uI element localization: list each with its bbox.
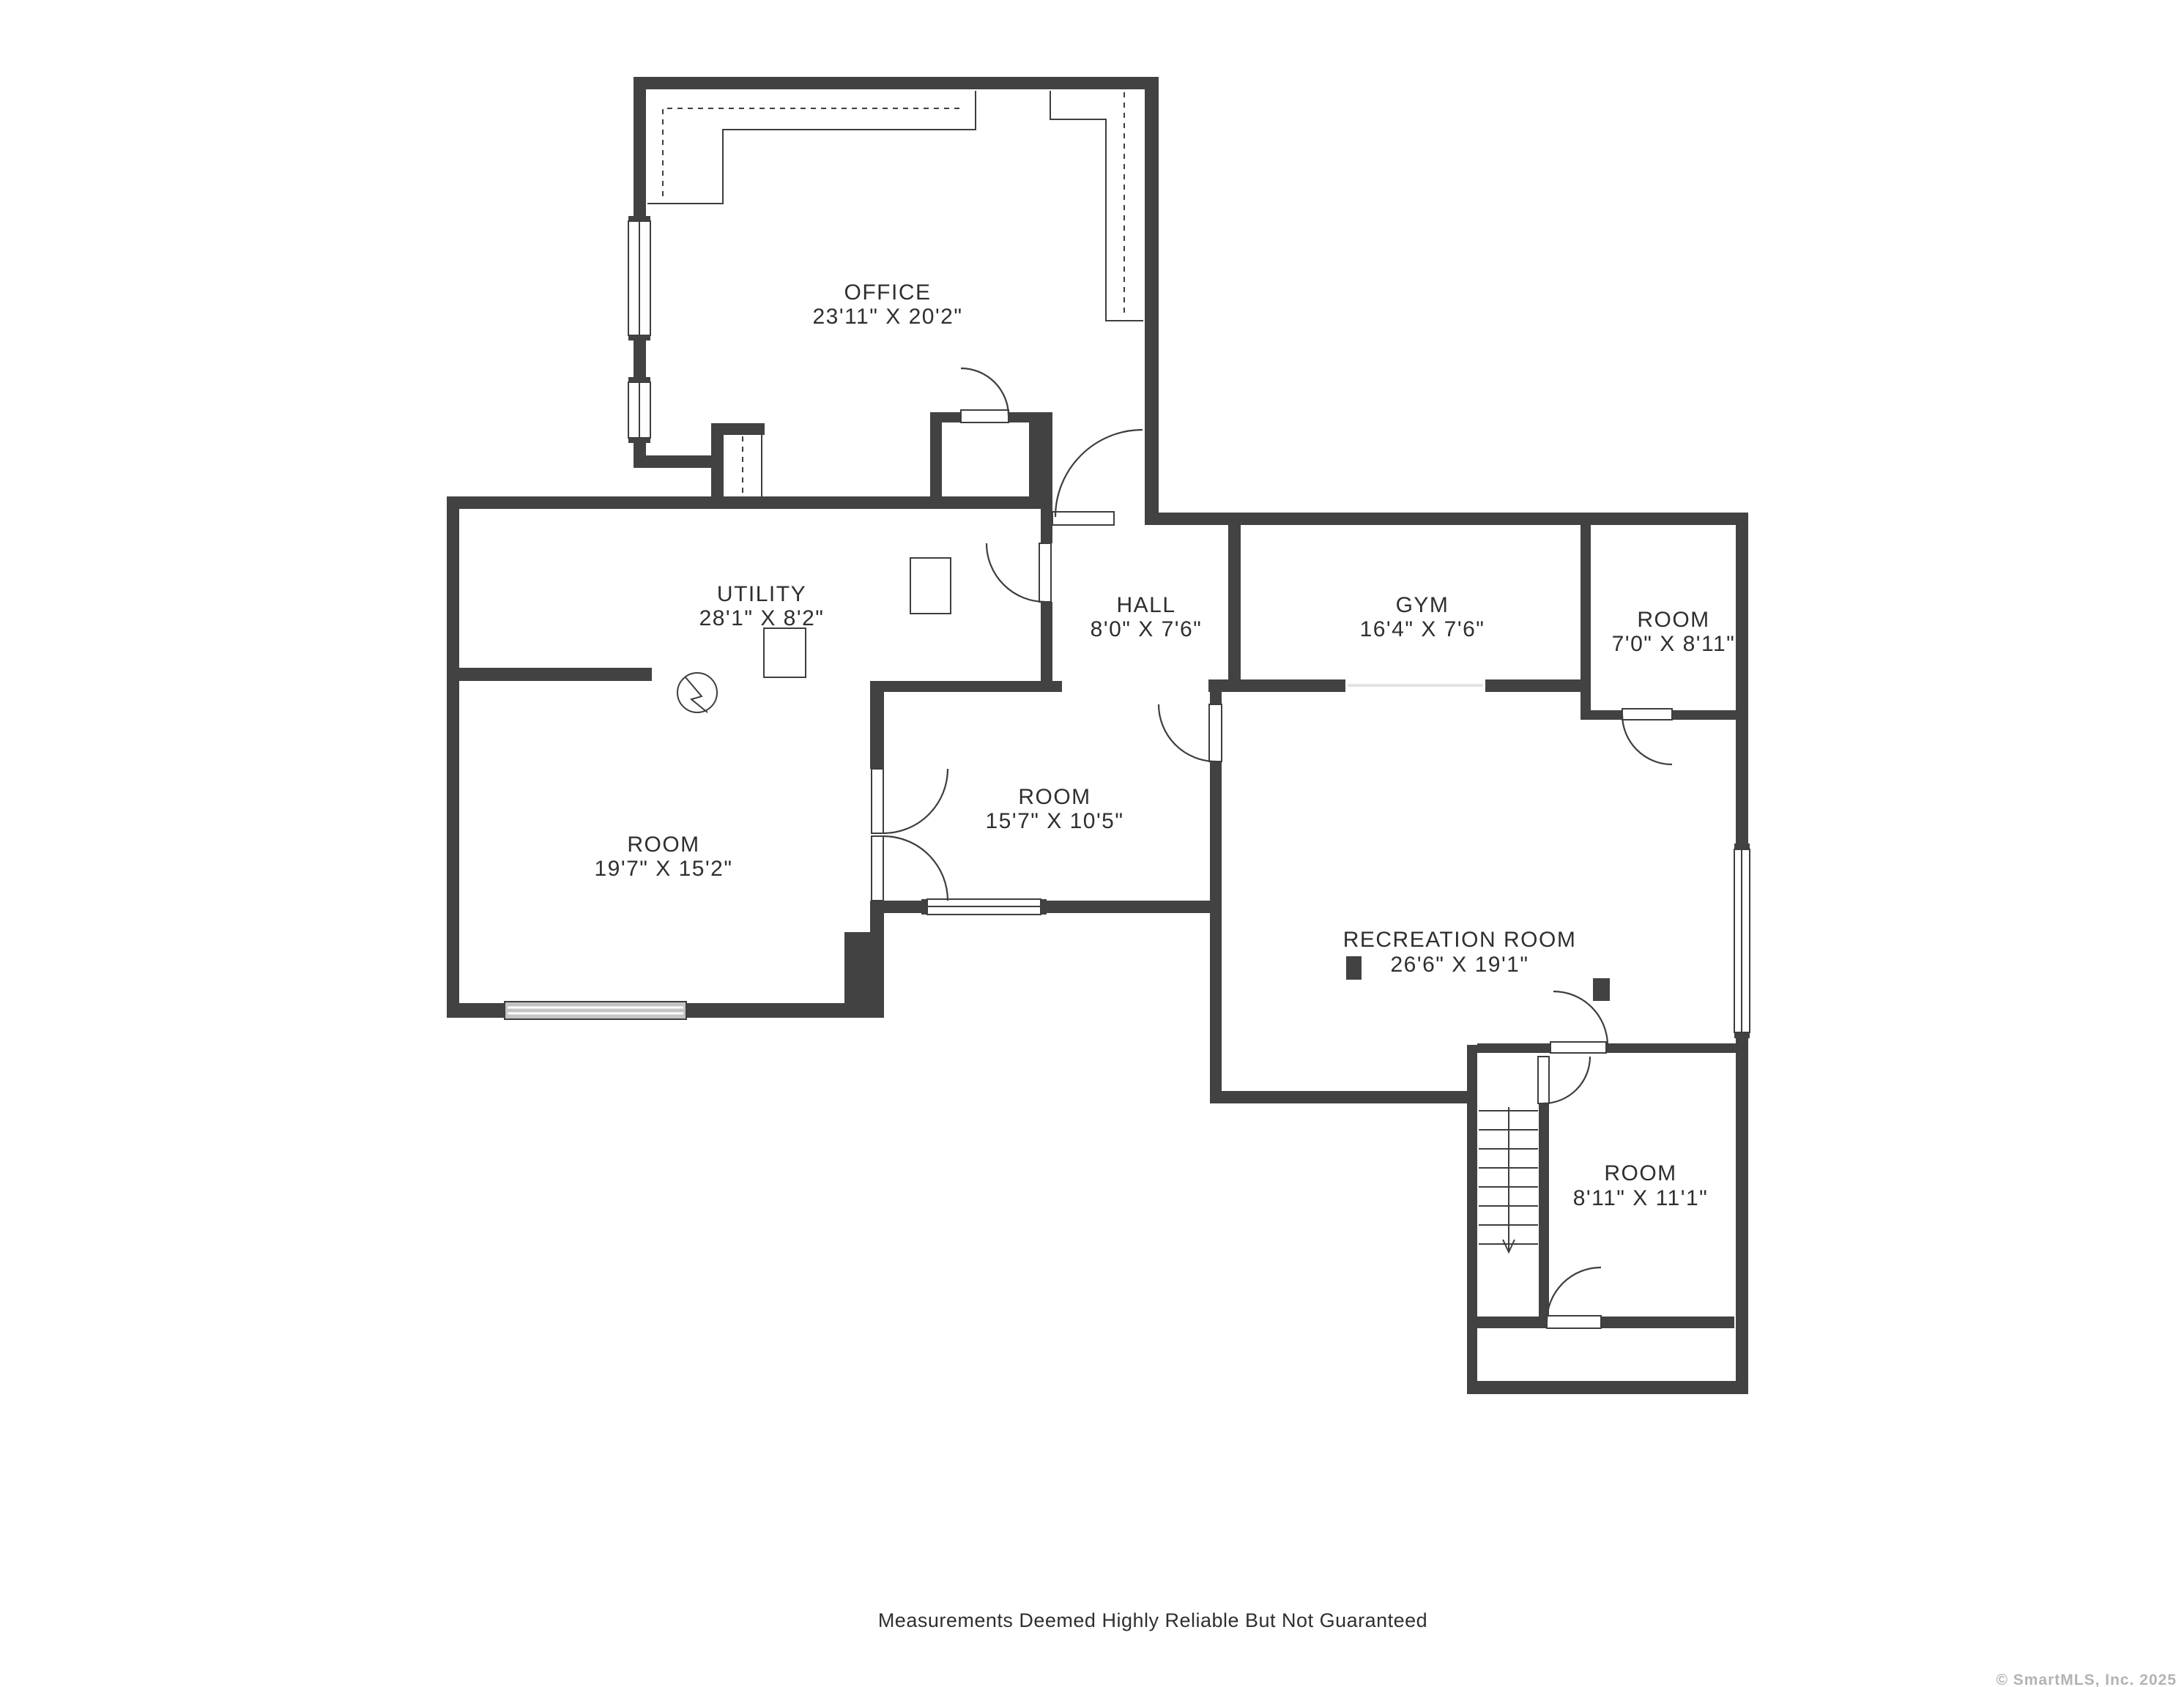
wall — [634, 337, 646, 381]
room-dims: 23'11" X 20'2" — [813, 305, 963, 329]
room-name: OFFICE — [844, 280, 932, 305]
wall — [634, 455, 724, 468]
room-dims: 7'0" X 8'11" — [1612, 632, 1736, 656]
door-arc — [961, 368, 1009, 416]
room-dims: 28'1" X 8'2" — [699, 606, 825, 630]
wall — [1485, 679, 1591, 692]
room-name: UTILITY — [717, 582, 806, 606]
smartmls-copyright: © SmartMLS, Inc. 2025 — [1996, 1672, 2177, 1687]
wall — [1041, 412, 1052, 543]
door-leaf — [872, 769, 883, 833]
door-leaf — [1209, 704, 1222, 761]
window-cap — [628, 216, 650, 221]
window — [505, 1002, 686, 1019]
wall — [1736, 1032, 1748, 1394]
door-leaf — [1547, 1316, 1601, 1328]
wall — [634, 77, 1159, 89]
room-dims: 16'4" X 7'6" — [1360, 617, 1485, 641]
wall — [1210, 761, 1222, 1103]
closet-wall — [1029, 412, 1041, 509]
doors — [872, 368, 1672, 1328]
wall — [1477, 1043, 1550, 1053]
door-arc — [1543, 1057, 1590, 1103]
wall — [1539, 1103, 1549, 1328]
wall — [1606, 1043, 1736, 1053]
room-dims: 15'7" X 10'5" — [985, 809, 1123, 833]
door-arc — [883, 769, 948, 833]
room-dims: 19'7" X 15'2" — [594, 857, 732, 881]
room-label-room-middle: ROOM 15'7" X 10'5" — [985, 785, 1123, 833]
room-label-hall: HALL 8'0" X 7'6" — [1091, 593, 1203, 641]
wall — [1591, 710, 1622, 720]
closet-rod-dashed — [663, 108, 959, 196]
wall — [1228, 525, 1241, 690]
room-name: ROOM — [627, 833, 699, 857]
room-dims: 26'6" X 19'1" — [1390, 953, 1529, 977]
wall — [1736, 513, 1748, 849]
wall — [1210, 1091, 1477, 1103]
door-leaf — [1538, 1057, 1549, 1103]
room-dims: 8'11" X 11'1" — [1573, 1186, 1709, 1210]
closet-outline — [1050, 91, 1143, 321]
support-post-icon — [1346, 956, 1362, 980]
wall — [1159, 513, 1748, 525]
staircase — [1479, 1107, 1538, 1252]
window-cap — [1734, 1032, 1750, 1038]
wall — [1467, 1045, 1477, 1394]
wall — [870, 681, 884, 769]
window-cap — [628, 335, 650, 340]
door-arc — [1622, 715, 1672, 764]
wall — [634, 89, 646, 220]
wall — [447, 496, 459, 1018]
room-name: ROOM — [1637, 608, 1709, 632]
room-label-room-bottom: ROOM 8'11" X 11'1" — [1573, 1161, 1709, 1210]
wall — [1041, 602, 1052, 681]
wall — [447, 668, 652, 681]
closet-wall — [930, 412, 961, 422]
utility-equipment-box — [764, 628, 806, 677]
measurements-disclaimer: Measurements Deemed Highly Reliable But … — [878, 1609, 1427, 1631]
room-label-office: OFFICE 23'11" X 20'2" — [813, 280, 963, 329]
door-leaf — [961, 410, 1009, 422]
wall — [1601, 1317, 1734, 1328]
door-arc — [987, 543, 1045, 602]
door-arc — [1547, 1267, 1601, 1322]
room-label-recreation: RECREATION ROOM 26'6" X 19'1" — [1343, 928, 1577, 977]
closet-wall — [930, 412, 942, 509]
window-cap — [628, 377, 650, 382]
door-leaf — [1550, 1042, 1606, 1053]
room-name: ROOM — [1018, 785, 1091, 809]
support-post-icon — [1593, 978, 1610, 1001]
room-dims: 8'0" X 7'6" — [1091, 617, 1203, 641]
chimney-wall — [711, 423, 724, 502]
room-name: HALL — [1116, 593, 1175, 617]
door-arc — [1055, 430, 1143, 517]
wall — [1041, 901, 1222, 913]
room-name: RECREATION ROOM — [1343, 928, 1577, 952]
door-arc — [883, 836, 948, 901]
door-leaf — [872, 836, 883, 901]
door-arc — [1159, 704, 1216, 761]
wall — [686, 1003, 884, 1018]
door-leaf — [1052, 512, 1114, 525]
room-label-room-left: ROOM 19'7" X 15'2" — [594, 833, 732, 881]
window-cap — [628, 438, 650, 443]
utility-equipment-box — [910, 558, 951, 614]
room-label-room-small: ROOM 7'0" X 8'11" — [1612, 608, 1736, 656]
floor-plan: OFFICE 23'11" X 20'2" UTILITY 28'1" X 8'… — [0, 0, 2184, 1687]
wall — [1672, 710, 1736, 720]
wall — [447, 1003, 505, 1018]
room-name: GYM — [1396, 593, 1449, 617]
wall — [1145, 77, 1159, 525]
room-name: ROOM — [1604, 1161, 1676, 1185]
room-label-utility: UTILITY 28'1" X 8'2" — [699, 582, 825, 630]
wall — [1208, 679, 1345, 692]
wall — [447, 496, 1041, 509]
door-leaf — [1622, 709, 1672, 720]
window-cap — [1734, 843, 1750, 849]
door-leaf — [1039, 543, 1051, 602]
furnace-zigzag — [686, 677, 707, 712]
wall — [1477, 1317, 1547, 1328]
wall — [1467, 1381, 1748, 1394]
window-cap — [921, 899, 927, 915]
room-label-gym: GYM 16'4" X 7'6" — [1360, 593, 1485, 641]
window-cap — [1041, 899, 1047, 915]
furnace-icon — [677, 673, 717, 712]
wall — [870, 681, 1062, 692]
wall — [870, 901, 926, 913]
wall — [1210, 679, 1222, 704]
wall — [1581, 525, 1591, 720]
